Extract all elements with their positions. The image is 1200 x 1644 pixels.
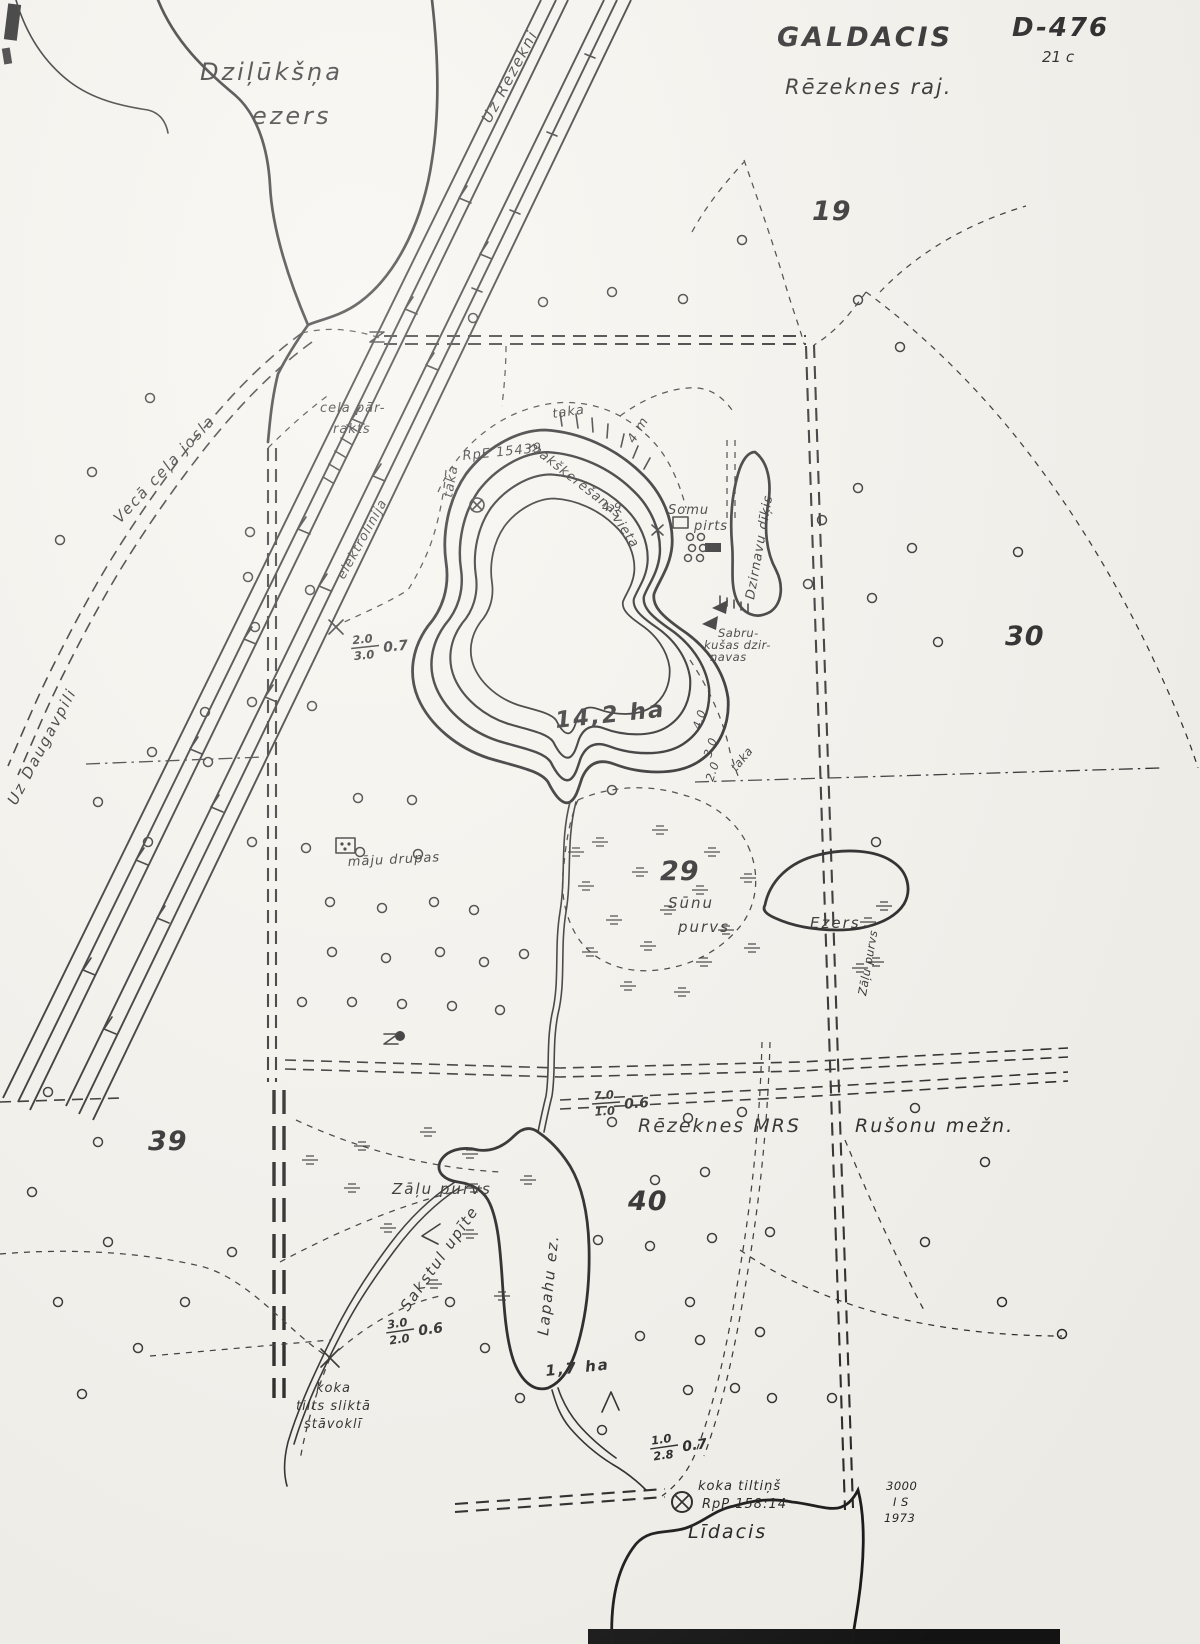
fraction-bottom: 3.0 <box>353 647 375 663</box>
road-spec-fraction-1: 2.0 3.0 0.7 <box>350 628 410 664</box>
trail-label-west: taka <box>441 464 461 499</box>
trail-label-southeast: taka <box>728 744 756 774</box>
road-cut-label-line2: rakts <box>333 422 371 437</box>
power-line-label: elektrolīnija <box>334 497 390 582</box>
moss-bog-label-line2: purvs <box>677 918 730 936</box>
direction-rezekne: Uz Rēzekni <box>478 27 542 126</box>
map-labels: GALDACIS Rēzeknes raj. D-476 21 c Dziļūk… <box>4 13 1110 1543</box>
lapahu-label: Lapahu ez. <box>534 1233 563 1336</box>
stream-label: Sakstul upīte <box>397 1203 483 1315</box>
fraction-top: 2.0 <box>352 631 374 647</box>
mill-pond-channel <box>702 452 781 630</box>
ruined-mill-label-line3: navas <box>710 650 747 664</box>
trails <box>0 160 1198 1460</box>
compartment-39: 39 <box>148 1126 188 1157</box>
fraction-bottom: 2.0 <box>388 1331 410 1348</box>
lidacis-label: Līdacis <box>688 1521 767 1543</box>
sauna-label-line1: Somu <box>668 503 709 518</box>
max-depth-label: 4,9 <box>602 500 622 514</box>
contour-label-3m: 3.0 <box>701 736 720 759</box>
small-bridge-label-line2: RpP 158:14 <box>702 1497 787 1512</box>
fraction-top: 1.0 <box>650 1431 672 1448</box>
flow-arrow <box>422 1224 440 1244</box>
road-spec-fraction-4: 1.0 2.8 0.7 <box>648 1426 709 1464</box>
lapahu-area-label: 1,7 ha <box>545 1355 611 1380</box>
fraction-top: 7.0 <box>593 1087 614 1102</box>
direction-daugavpils: Uz Daugavpili <box>4 685 81 808</box>
grass-bog-label-right: Zāļu purvs <box>855 929 880 998</box>
house-ruins-label: māju drupas <box>347 850 440 870</box>
road-spec-fraction-3: 3.0 2.0 0.6 <box>384 1310 445 1348</box>
railway-lines <box>3 0 631 1120</box>
dzilukssna-label-line1: Dziļūkšņa <box>200 58 343 86</box>
bad-bridge-label-line3: stāvoklī <box>304 1417 363 1432</box>
imprint-line2: I S <box>893 1495 909 1509</box>
imprint-line3: 1973 <box>884 1511 915 1525</box>
lidacis-lake <box>612 1490 864 1644</box>
map-title: GALDACIS <box>777 22 953 53</box>
house-ruins-symbol <box>336 838 355 853</box>
benchmark-symbol <box>470 498 484 512</box>
contour-label-4m: 4.0 <box>690 708 709 731</box>
bad-bridge-label-line1: koka <box>316 1381 351 1396</box>
scan-artifacts <box>2 3 1060 1644</box>
imprint-line1: 3000 <box>886 1479 917 1493</box>
fraction-side: 0.6 <box>624 1095 650 1113</box>
fishing-spot-label-line2: vieta <box>609 512 642 551</box>
road-cut-label-line1: ceļa pār- <box>320 401 385 416</box>
dzilukssna-label-line2: ezers <box>252 102 332 130</box>
old-road-label: Vecā ceļa josla <box>110 411 219 526</box>
sauna-label-line2: pirts <box>693 519 728 534</box>
small-bridge-label-line1: koka tiltiņš <box>698 1479 781 1494</box>
catalog-code-sub: 21 c <box>1042 48 1075 66</box>
moss-bog-label-line1: Sūnu <box>668 894 714 912</box>
fraction-top: 3.0 <box>386 1315 408 1332</box>
grass-bog-label: Zāļu purvs <box>391 1180 492 1198</box>
map-canvas: GALDACIS Rēzeknes raj. D-476 21 c Dziļūk… <box>0 0 1200 1644</box>
contour-label-2m: 2.0 <box>703 760 722 783</box>
forest-roads <box>0 1042 1068 1496</box>
mill-pond-label: Dzirnavu dīķis <box>743 494 776 601</box>
swamp-symbols <box>302 826 892 1300</box>
scanned-forest-map: GALDACIS Rēzeknes raj. D-476 21 c Dziļūk… <box>0 0 1200 1644</box>
compartment-30: 30 <box>1005 621 1045 652</box>
road-spec-fraction-2: 7.0 1.0 0.6 <box>591 1085 650 1119</box>
compartment-19: 19 <box>812 196 852 227</box>
catalog-code: D-476 <box>1012 13 1109 43</box>
map-subtitle: Rēzeknes raj. <box>785 75 952 99</box>
fraction-side: 0.7 <box>382 638 409 657</box>
fraction-bottom: 1.0 <box>594 1103 615 1118</box>
fraction-side: 0.7 <box>681 1436 708 1455</box>
fraction-side: 0.6 <box>417 1320 444 1339</box>
wooden-bridge-symbol <box>321 1349 339 1367</box>
rail-crossing-symbol <box>329 620 343 634</box>
small-lake-label: Ezers <box>810 914 861 932</box>
scan-black-bar <box>588 1629 1060 1644</box>
bridge-point-symbol <box>672 1492 692 1512</box>
boundary-marker <box>384 1034 398 1044</box>
compartment-29: 29 <box>660 856 700 887</box>
fraction-bottom: 2.8 <box>652 1447 674 1464</box>
trail-label-north: taka <box>551 403 585 422</box>
forestry-label-1: Rēzeknes MRS <box>638 1115 801 1137</box>
dam-arrow-symbol <box>702 616 718 630</box>
lake-area-label: 14,2 ha <box>554 697 667 734</box>
forestry-label-2: Rušonu mežn. <box>855 1115 1014 1137</box>
flow-arrow <box>602 1392 619 1412</box>
trail-width-label: 4 m <box>625 414 653 446</box>
compartment-40: 40 <box>627 1186 668 1217</box>
bad-bridge-label-line2: tilts sliktā <box>296 1399 371 1414</box>
